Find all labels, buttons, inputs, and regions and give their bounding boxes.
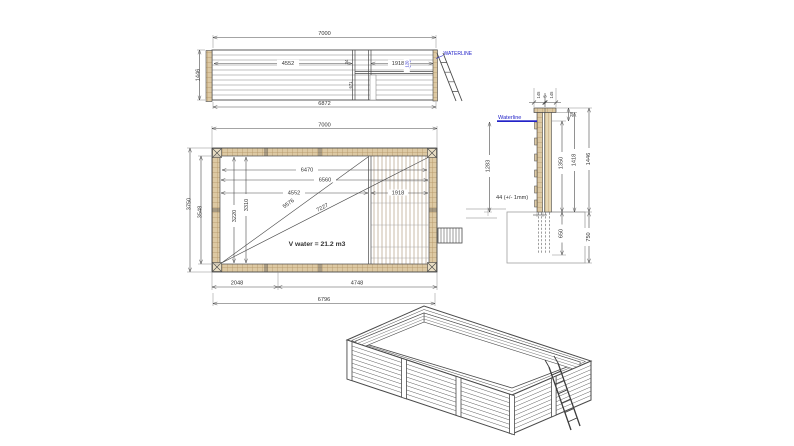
elevation-dim-mid: 4552 [282,61,294,67]
plan-dim-vert-2: 3220 [232,210,238,222]
plan-dim-left-outer: 3750 [187,198,193,210]
elevation-waterline-label: WATERLINE [444,51,473,57]
drawing-page: 7000 1446 6872 4552 1918 34 671 120 WATE… [0,0,794,446]
section-dim-cap-right: 145 [549,91,554,99]
elevation-dim-panel: 671 [348,81,353,89]
plan-view: 6470 6560 4552 1918 3310 3220 5576 7227 [187,123,463,307]
section-ground-lines [466,209,506,218]
section-dim-below-inner: 650 [559,229,565,238]
plan-dim-top: 7000 [318,123,330,129]
elevation-view: 7000 1446 6872 4552 1918 34 671 120 WATE… [196,31,473,109]
section-dim-inner-height: 1350 [559,157,565,169]
plan-dim-left-inner: 3548 [198,206,204,218]
plan-dim-bottom-1: 2048 [231,281,243,287]
section-wall-outer [545,113,552,213]
elevation-dim-top: 7000 [318,31,330,37]
elevation-dim-right: 1918 [392,61,404,67]
plan-dim-bottom-2: 4748 [351,281,363,287]
elevation-dim-board: 34 [344,59,349,64]
elevation-ladder [437,53,462,101]
section-dim-cap-left: 145 [536,91,541,99]
isometric-view [347,306,591,435]
section-dim-water-depth: 1283 [486,160,492,172]
section-dim-top-offset: 28 [569,112,574,117]
section-dim-total-height: 1446 [586,153,592,165]
plan-dim-inner-2: 6560 [319,178,331,184]
plan-dim-right-panel: 1918 [392,191,404,197]
section-ground-block [507,212,585,263]
elevation-right-post [433,50,438,101]
drawing-canvas: 7000 1446 6872 4552 1918 34 671 120 WATE… [0,0,794,446]
section-plank-note: 44 (+/- 1mm) [496,195,528,201]
section-buried-posts [539,213,550,255]
section-dim-cap-gap: 5 [543,95,548,98]
elevation-left-post [206,51,212,102]
elevation-dim-waterline-offset: 120 [405,60,410,68]
section-wall-inner [537,113,543,213]
plan-ladder [438,228,462,243]
section-dim-mid-height: 1418 [572,154,578,166]
plan-dim-bottom-3: 6796 [318,297,330,303]
section-view: Waterline 1283 44 (+/- 1mm) 145 5 145 28… [466,88,592,263]
elevation-dim-left: 1446 [196,69,202,81]
plan-dim-inner-top: 6470 [301,168,313,174]
section-waterline-label: Waterline [498,115,521,121]
elevation-skimmer [370,75,376,100]
section-dim-below-outer: 750 [586,232,592,241]
plan-volume-label: V water = 21.2 m3 [289,241,346,248]
section-wall-cleats [535,122,538,207]
elevation-dim-bottom: 6872 [318,101,330,107]
plan-dim-vert-1: 3310 [244,199,250,211]
